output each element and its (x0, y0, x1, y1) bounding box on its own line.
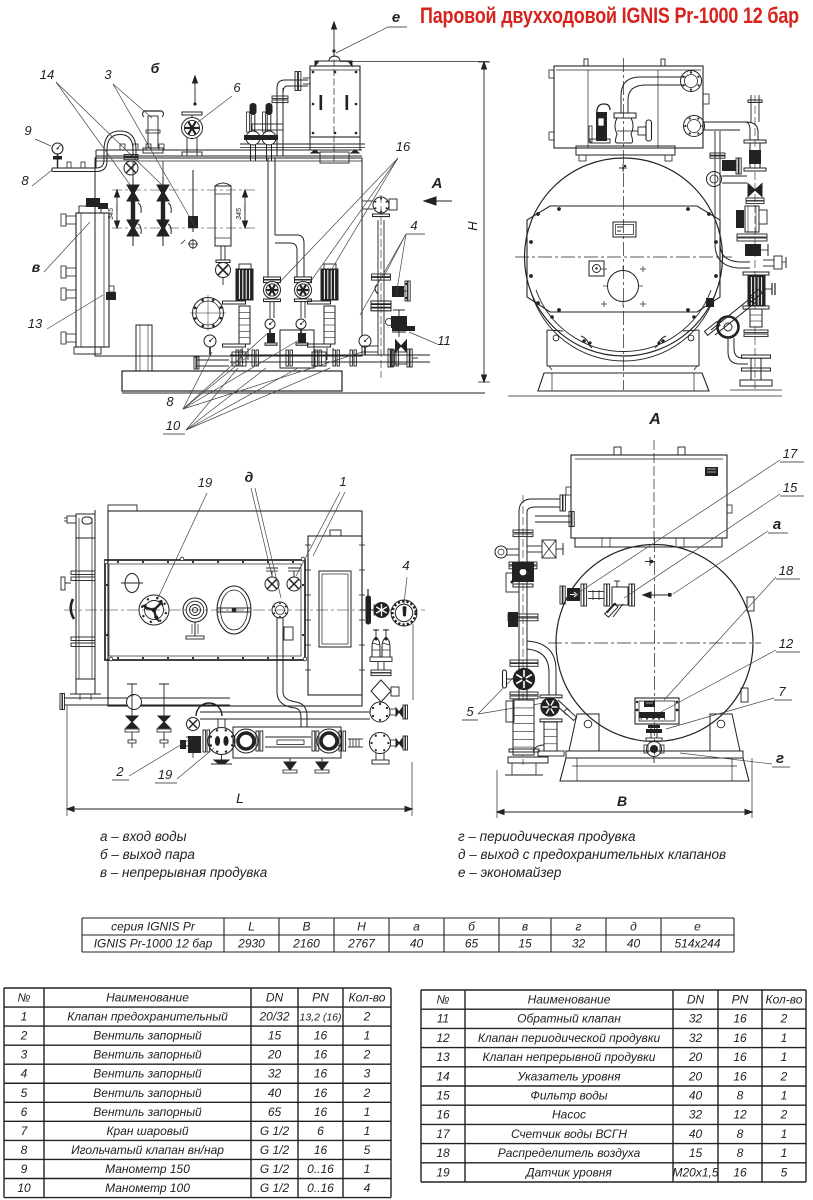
svg-text:№: № (18, 991, 31, 1005)
svg-text:8: 8 (737, 1089, 744, 1103)
svg-text:б – выход пара: б – выход пара (100, 847, 195, 862)
svg-text:40: 40 (627, 937, 641, 951)
svg-text:1: 1 (781, 1127, 788, 1141)
svg-text:Обратный клапан: Обратный клапан (517, 1012, 621, 1026)
svg-text:12: 12 (779, 636, 794, 651)
svg-text:10: 10 (166, 418, 181, 433)
svg-text:Клапан предохранительный: Клапан предохранительный (67, 1010, 228, 1024)
svg-text:32: 32 (268, 1067, 282, 1081)
svg-text:г – периодическая продувка: г – периодическая продувка (458, 829, 636, 844)
svg-text:в – непрерывная продувка: в – непрерывная продувка (100, 865, 268, 880)
svg-text:16: 16 (436, 1108, 450, 1122)
svg-text:1: 1 (364, 1105, 371, 1119)
svg-text:Игольчатый клапан вн/нар: Игольчатый клапан вн/нар (71, 1143, 224, 1157)
svg-text:0..16: 0..16 (307, 1181, 334, 1195)
svg-text:15: 15 (436, 1089, 450, 1103)
svg-text:е: е (694, 920, 701, 934)
svg-text:11: 11 (437, 333, 451, 348)
svg-text:б: б (151, 60, 160, 76)
svg-text:16: 16 (733, 1069, 747, 1083)
svg-text:16: 16 (733, 1031, 747, 1045)
svg-text:20: 20 (688, 1069, 703, 1083)
svg-text:5: 5 (466, 704, 474, 719)
svg-text:4: 4 (364, 1181, 371, 1195)
svg-text:PN: PN (732, 993, 749, 1007)
svg-text:Манометр 100: Манометр 100 (105, 1181, 190, 1195)
svg-text:19: 19 (198, 475, 212, 490)
svg-text:9: 9 (21, 1162, 28, 1176)
svg-text:е – экономайзер: е – экономайзер (458, 865, 562, 880)
svg-text:Указатель уровня: Указатель уровня (516, 1069, 621, 1083)
svg-text:40: 40 (268, 1086, 282, 1100)
svg-text:6: 6 (317, 1124, 324, 1138)
svg-text:2: 2 (780, 1012, 788, 1026)
svg-text:L: L (248, 920, 255, 934)
svg-text:2: 2 (20, 1029, 28, 1043)
svg-text:д – выход с предохранительных: д – выход с предохранительных клапанов (458, 847, 726, 862)
svg-text:4: 4 (21, 1067, 28, 1081)
svg-text:А: А (648, 411, 661, 428)
svg-text:А: А (431, 175, 443, 192)
svg-text:13: 13 (28, 316, 43, 331)
svg-text:е: е (392, 9, 400, 26)
svg-text:32: 32 (689, 1012, 703, 1026)
svg-text:2930: 2930 (237, 937, 265, 951)
svg-text:Вентиль запорный: Вентиль запорный (93, 1048, 202, 1062)
svg-text:G 1/2: G 1/2 (260, 1162, 290, 1176)
svg-text:д: д (630, 920, 637, 934)
svg-text:14: 14 (40, 67, 54, 82)
svg-text:DN: DN (687, 993, 705, 1007)
svg-text:8: 8 (21, 1143, 28, 1157)
svg-text:13: 13 (436, 1050, 450, 1064)
svg-text:345: 345 (236, 208, 243, 220)
svg-text:3: 3 (21, 1048, 28, 1062)
svg-text:Кол-во: Кол-во (349, 991, 386, 1005)
svg-text:16: 16 (733, 1165, 747, 1179)
svg-text:Вентиль запорный: Вентиль запорный (93, 1029, 202, 1043)
svg-text:18: 18 (779, 563, 794, 578)
svg-text:Клапан периодической продувки: Клапан периодической продувки (478, 1031, 661, 1045)
svg-text:12: 12 (436, 1031, 450, 1045)
svg-text:8: 8 (166, 394, 174, 409)
svg-text:2: 2 (363, 1086, 371, 1100)
svg-text:16: 16 (314, 1048, 328, 1062)
svg-text:3: 3 (104, 67, 112, 82)
svg-text:1: 1 (21, 1010, 28, 1024)
svg-text:8: 8 (737, 1146, 744, 1160)
svg-text:Вентиль запорный: Вентиль запорный (93, 1105, 202, 1119)
svg-text:32: 32 (572, 937, 586, 951)
svg-text:6: 6 (21, 1105, 28, 1119)
svg-text:д: д (245, 469, 254, 485)
svg-text:1: 1 (364, 1029, 371, 1043)
svg-text:17: 17 (436, 1127, 451, 1141)
svg-text:16: 16 (314, 1029, 328, 1043)
svg-text:2: 2 (363, 1010, 371, 1024)
svg-text:65: 65 (268, 1105, 282, 1119)
svg-text:3: 3 (364, 1067, 371, 1081)
svg-text:4: 4 (402, 558, 409, 573)
svg-text:M20х1,5: M20х1,5 (672, 1165, 718, 1179)
svg-text:5: 5 (781, 1165, 788, 1179)
svg-text:16: 16 (396, 139, 411, 154)
svg-text:в: в (32, 259, 41, 275)
svg-text:7: 7 (21, 1124, 29, 1138)
svg-text:20/32: 20/32 (258, 1010, 289, 1024)
svg-text:Фильтр воды: Фильтр воды (530, 1089, 607, 1103)
svg-text:6: 6 (233, 80, 241, 95)
svg-text:17: 17 (783, 446, 798, 461)
svg-text:серия IGNIS Pr: серия IGNIS Pr (111, 920, 196, 934)
svg-text:5: 5 (364, 1143, 371, 1157)
svg-text:Н: Н (465, 221, 480, 231)
svg-text:L: L (236, 790, 244, 806)
svg-text:40: 40 (410, 937, 424, 951)
svg-text:13,2 (16): 13,2 (16) (299, 1012, 341, 1024)
svg-text:Клапан непрерывной продувки: Клапан непрерывной продувки (483, 1050, 656, 1064)
svg-text:1: 1 (364, 1162, 371, 1176)
svg-text:1: 1 (781, 1050, 788, 1064)
svg-text:G 1/2: G 1/2 (260, 1124, 290, 1138)
svg-text:40: 40 (689, 1127, 703, 1141)
svg-text:5: 5 (21, 1086, 28, 1100)
svg-text:7: 7 (778, 684, 786, 699)
svg-text:16: 16 (314, 1086, 328, 1100)
svg-text:8: 8 (21, 173, 29, 188)
svg-text:1: 1 (781, 1146, 788, 1160)
svg-text:2: 2 (780, 1069, 788, 1083)
svg-text:32: 32 (689, 1108, 703, 1122)
svg-text:19: 19 (436, 1165, 450, 1179)
svg-text:20: 20 (688, 1050, 703, 1064)
svg-text:16: 16 (314, 1067, 328, 1081)
svg-text:345: 345 (108, 208, 115, 220)
svg-text:а – вход воды: а – вход воды (100, 829, 187, 844)
svg-text:1: 1 (781, 1031, 788, 1045)
svg-text:Вентиль запорный: Вентиль запорный (93, 1067, 202, 1081)
svg-text:G 1/2: G 1/2 (260, 1143, 290, 1157)
svg-text:9: 9 (24, 123, 31, 138)
svg-text:№: № (437, 993, 450, 1007)
svg-text:г: г (776, 750, 784, 767)
svg-text:20: 20 (267, 1048, 282, 1062)
svg-text:19: 19 (158, 767, 172, 782)
svg-text:16: 16 (314, 1143, 328, 1157)
svg-text:Манометр 150: Манометр 150 (105, 1162, 190, 1176)
svg-text:16: 16 (733, 1012, 747, 1026)
svg-text:Кран шаровый: Кран шаровый (106, 1124, 188, 1138)
svg-text:10: 10 (17, 1181, 31, 1195)
svg-text:Распределитель воздуха: Распределитель воздуха (498, 1146, 641, 1160)
svg-text:Наименование: Наименование (528, 993, 611, 1007)
svg-text:Счетчик воды ВСГН: Счетчик воды ВСГН (511, 1127, 627, 1141)
svg-text:16: 16 (314, 1105, 328, 1119)
svg-text:40: 40 (689, 1089, 703, 1103)
svg-text:B: B (302, 920, 310, 934)
svg-text:12: 12 (733, 1108, 747, 1122)
svg-text:514х244: 514х244 (674, 937, 720, 951)
svg-text:16: 16 (733, 1050, 747, 1064)
svg-text:2: 2 (115, 764, 124, 779)
svg-text:г: г (576, 920, 582, 934)
svg-text:Датчик уровня: Датчик уровня (524, 1165, 612, 1179)
svg-text:Вентиль запорный: Вентиль запорный (93, 1086, 202, 1100)
svg-text:Наименование: Наименование (106, 991, 189, 1005)
svg-text:H: H (357, 920, 366, 934)
svg-text:15: 15 (518, 937, 532, 951)
svg-text:8: 8 (737, 1127, 744, 1141)
svg-text:PN: PN (312, 991, 329, 1005)
svg-text:14: 14 (436, 1069, 450, 1083)
svg-text:15: 15 (783, 480, 798, 495)
svg-text:2160: 2160 (292, 937, 320, 951)
svg-text:IGNIS Pr-1000 12 бар: IGNIS Pr-1000 12 бар (94, 937, 213, 951)
svg-text:65: 65 (465, 937, 479, 951)
svg-text:2: 2 (780, 1108, 788, 1122)
svg-text:G 1/2: G 1/2 (260, 1181, 290, 1195)
svg-text:2: 2 (363, 1048, 371, 1062)
svg-text:Кол-во: Кол-во (766, 993, 803, 1007)
svg-text:11: 11 (437, 1012, 449, 1026)
svg-text:В: В (617, 793, 627, 809)
svg-text:1: 1 (781, 1089, 788, 1103)
svg-text:0..16: 0..16 (307, 1162, 334, 1176)
svg-text:а: а (773, 516, 781, 533)
svg-text:4: 4 (410, 218, 417, 233)
svg-text:2767: 2767 (347, 937, 376, 951)
svg-text:DN: DN (266, 991, 284, 1005)
svg-text:15: 15 (689, 1146, 703, 1160)
svg-text:1: 1 (364, 1124, 371, 1138)
svg-text:б: б (468, 920, 476, 934)
svg-text:Насос: Насос (552, 1108, 586, 1122)
svg-text:32: 32 (689, 1031, 703, 1045)
svg-text:15: 15 (268, 1029, 282, 1043)
svg-text:18: 18 (436, 1146, 450, 1160)
svg-text:в: в (522, 920, 528, 934)
svg-text:а: а (413, 920, 420, 934)
svg-text:1: 1 (339, 474, 346, 489)
